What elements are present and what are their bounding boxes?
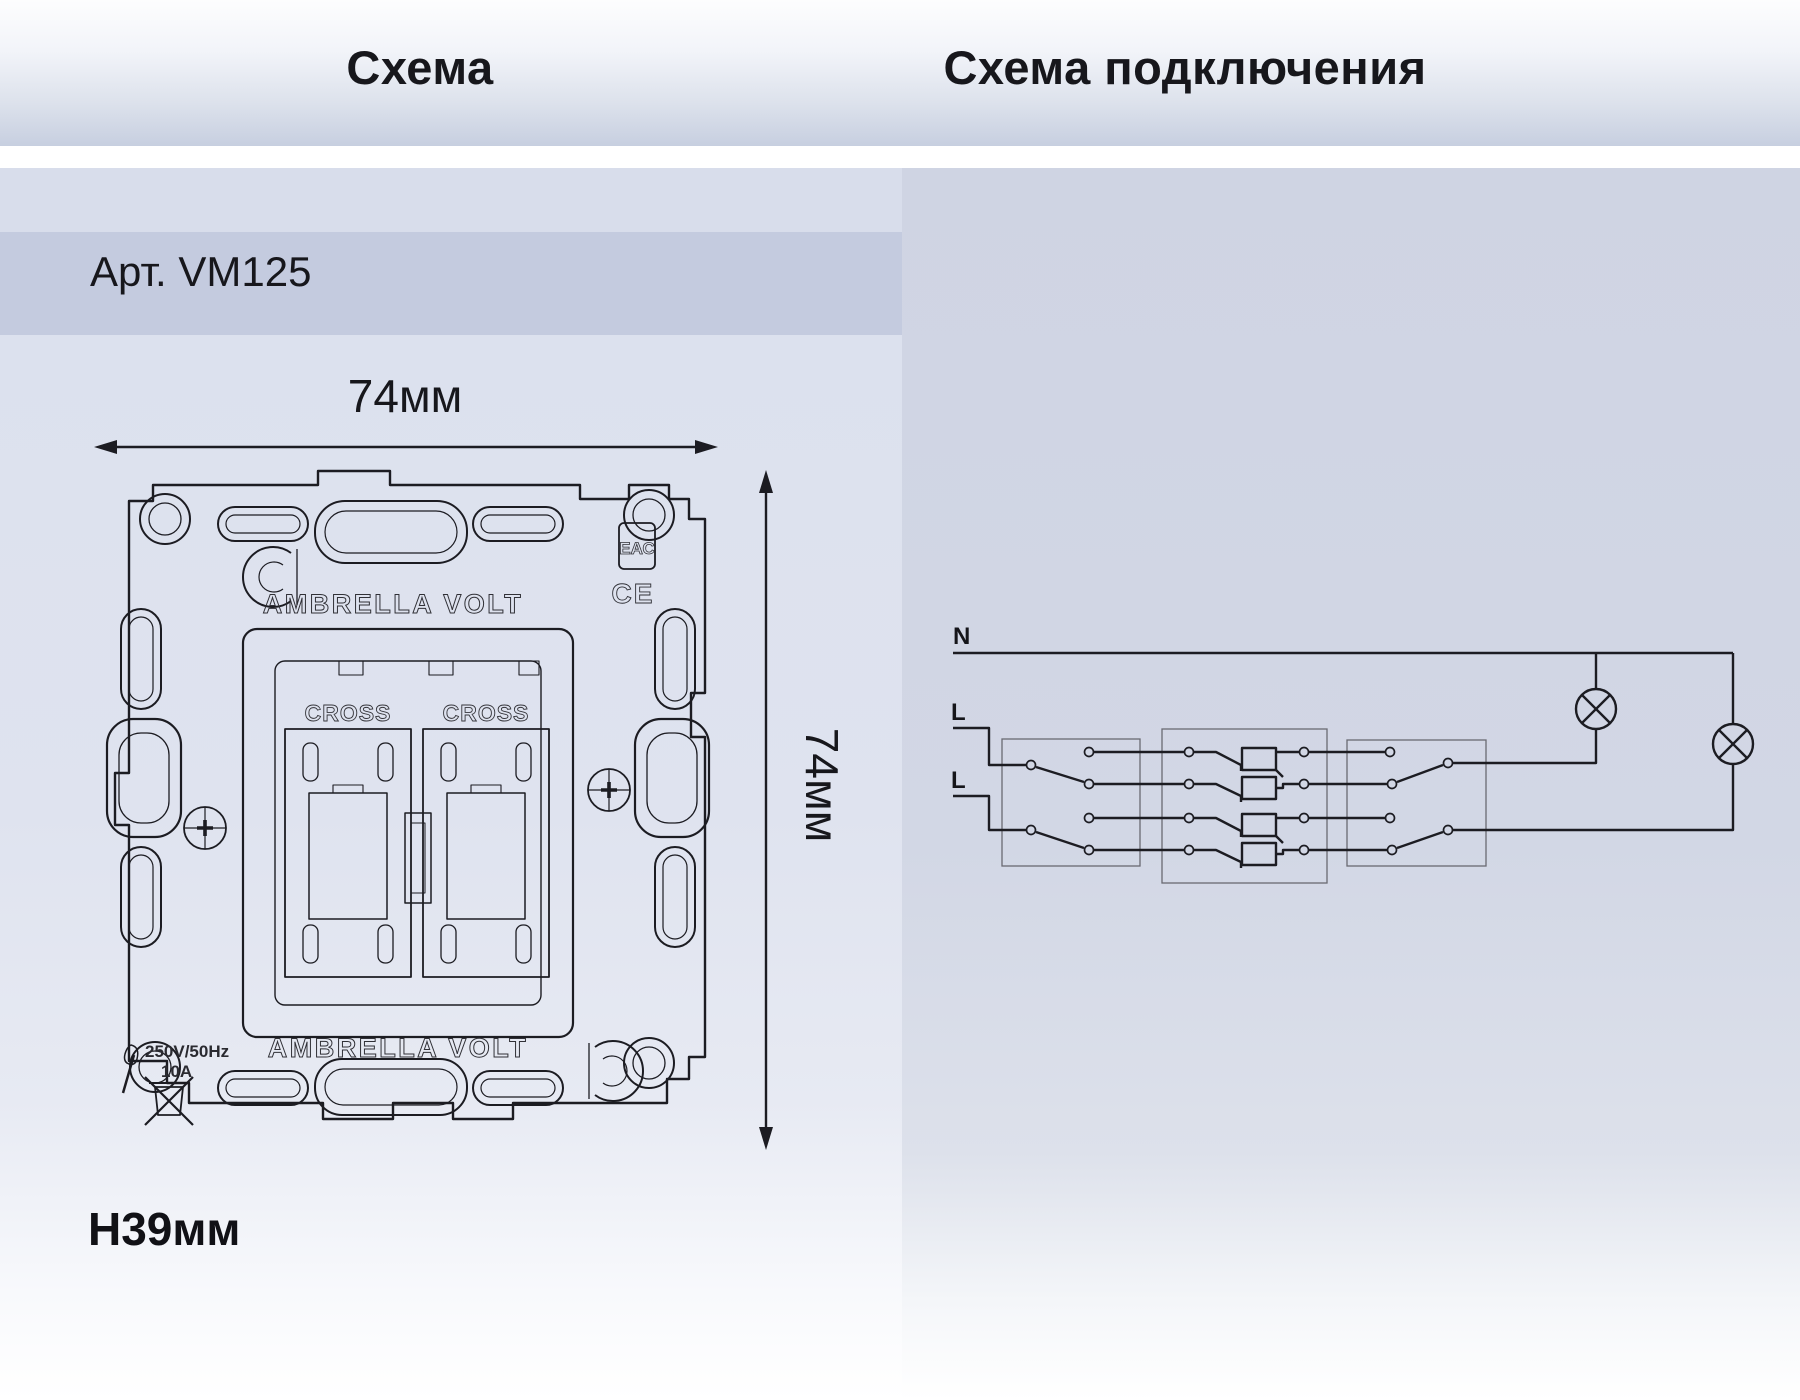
terminal [1300, 748, 1309, 757]
switch-blade [1397, 832, 1443, 848]
terminal [1185, 748, 1194, 757]
terminal [1185, 846, 1194, 855]
product-spec-sheet: Схема Схема подключения Арт. VM125 H39мм… [0, 0, 1800, 1400]
switch-blade [1036, 832, 1084, 848]
terminal [1027, 761, 1036, 770]
claw-screw-left [184, 807, 226, 849]
cross-switch-gang2 [1194, 814, 1299, 868]
corner-screw-holes [130, 490, 674, 1092]
mechanism-drawing: AMBRELLA VOLT AMBRELLA VOLT CROSS CROSS … [93, 457, 723, 1147]
l2-feed [953, 796, 1026, 830]
switch-box-left [1002, 739, 1140, 866]
cross-switch-gang1 [1194, 748, 1299, 802]
terminal [1444, 826, 1453, 835]
arrow-down-icon [759, 1127, 773, 1150]
cross-label-left: CROSS [305, 700, 392, 726]
switch-unit-left [285, 729, 411, 977]
terminal [1085, 748, 1094, 757]
terminal [1300, 846, 1309, 855]
switch-blade [1397, 765, 1443, 782]
line1-label: L [951, 699, 966, 726]
switch-unit-right [423, 729, 549, 977]
width-dimension-label: 74мм [348, 370, 462, 422]
right-panel-title: Схема подключения [943, 40, 1426, 95]
rating-current: 10A [161, 1062, 192, 1081]
lamp-icon-2 [1713, 724, 1753, 764]
wiring-diagram: N L L [902, 168, 1800, 1400]
terminal [1386, 748, 1395, 757]
switch-box-right [1347, 740, 1486, 866]
height-dimension-label: 74мм [796, 728, 848, 842]
switch-module-frame [243, 629, 573, 1037]
terminal [1388, 780, 1397, 789]
terminal [1444, 759, 1453, 768]
terminal [1085, 780, 1094, 789]
l1-feed [953, 728, 1026, 765]
terminal [1085, 814, 1094, 823]
eac-text: ЕАС [619, 539, 654, 558]
brand-engraving-top: AMBRELLA VOLT [263, 589, 523, 619]
claw-screw-right [588, 769, 630, 811]
lamp1-wire [1453, 653, 1596, 763]
terminal [1386, 814, 1395, 823]
line2-label: L [951, 767, 966, 794]
terminal [1300, 780, 1309, 789]
expansion-claws [107, 719, 709, 837]
module-link [405, 813, 431, 903]
mounting-plate-outline [115, 471, 705, 1119]
brand-engraving-bottom: AMBRELLA VOLT [268, 1033, 528, 1063]
rating-voltage: 250V/50Hz [145, 1042, 229, 1061]
neutral-label: N [953, 623, 970, 650]
terminal [1388, 846, 1397, 855]
arrow-right-icon [695, 440, 718, 454]
lamp2-wire [1453, 653, 1733, 830]
switch-blade [1036, 767, 1084, 782]
cross-label-right: CROSS [443, 700, 530, 726]
terminal [1085, 846, 1094, 855]
bottom-fixing-slots [218, 1059, 563, 1115]
arrow-up-icon [759, 470, 773, 493]
arrow-left-icon [94, 440, 117, 454]
terminal [1185, 814, 1194, 823]
ce-text: CE [612, 578, 655, 609]
terminal [1185, 780, 1194, 789]
terminal [1027, 826, 1036, 835]
lamp-icon-1 [1576, 689, 1616, 729]
terminal [1300, 814, 1309, 823]
top-fixing-slots [218, 501, 563, 563]
